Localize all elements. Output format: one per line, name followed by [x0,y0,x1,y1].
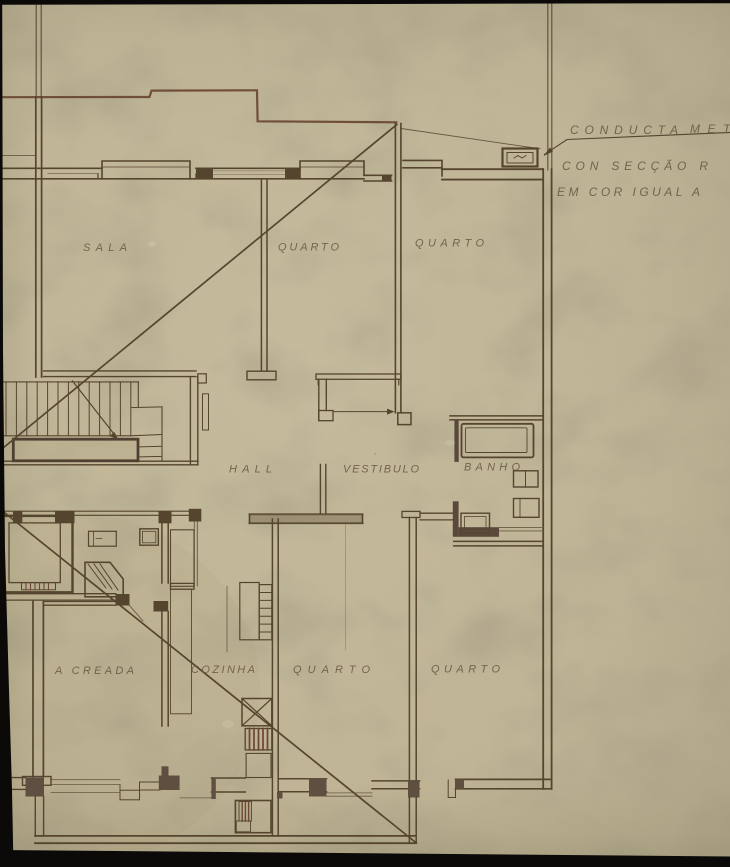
svg-text:META: META [690,122,730,136]
svg-text:VESTIBULO: VESTIBULO [343,464,419,476]
svg-text:EM COR IGUAL A: EM COR IGUAL A [557,185,700,199]
svg-text:A CREADA: A CREADA [54,665,134,677]
